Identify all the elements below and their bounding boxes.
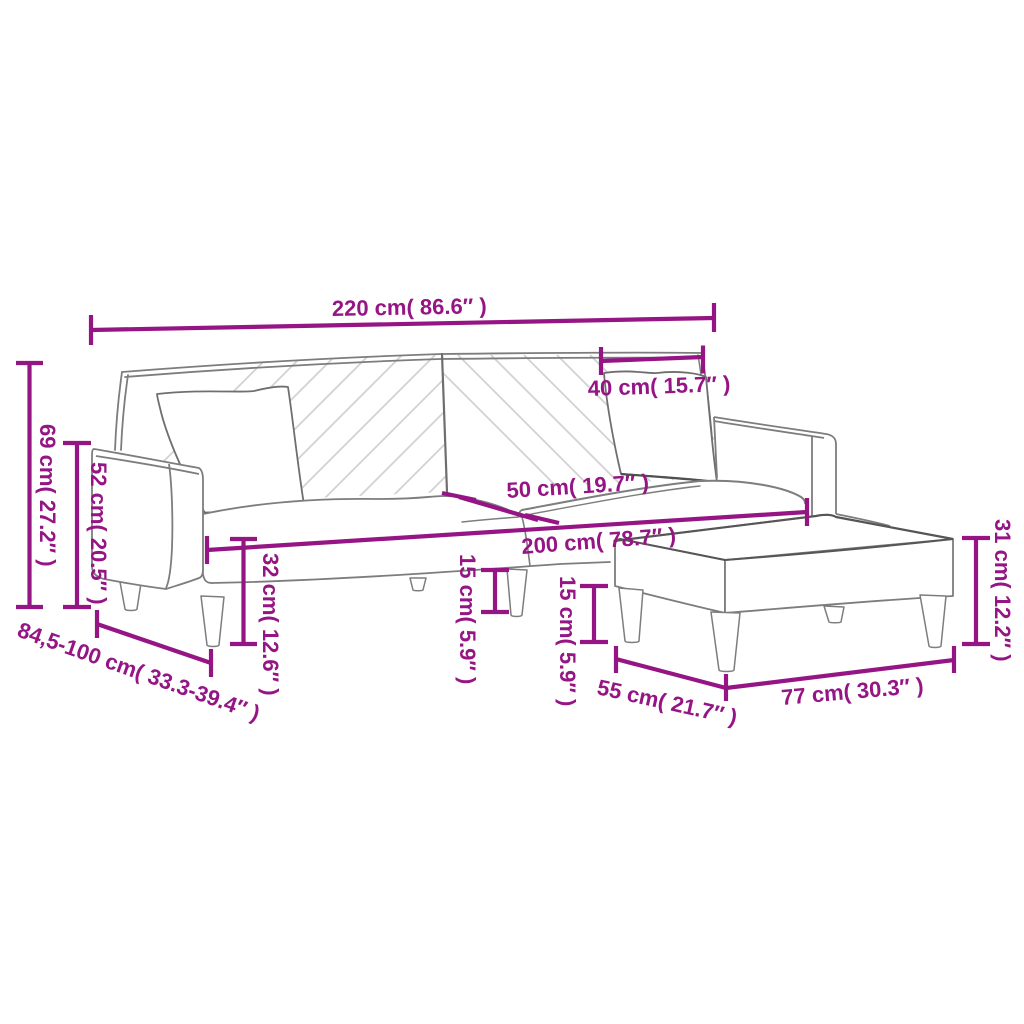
svg-text:69 cm( 27.2″ ): 69 cm( 27.2″ ) xyxy=(35,424,60,567)
svg-text:15 cm( 5.9″ ): 15 cm( 5.9″ ) xyxy=(555,576,580,706)
svg-text:220 cm( 86.6″ ): 220 cm( 86.6″ ) xyxy=(332,293,487,321)
svg-text:32 cm( 12.6″ ): 32 cm( 12.6″ ) xyxy=(258,553,283,696)
svg-text:40 cm( 15.7″ ): 40 cm( 15.7″ ) xyxy=(587,371,730,401)
svg-text:31 cm( 12.2″ ): 31 cm( 12.2″ ) xyxy=(990,519,1015,662)
svg-text:15 cm( 5.9″ ): 15 cm( 5.9″ ) xyxy=(455,554,480,684)
svg-text:52 cm( 20.5″ ): 52 cm( 20.5″ ) xyxy=(86,462,111,605)
